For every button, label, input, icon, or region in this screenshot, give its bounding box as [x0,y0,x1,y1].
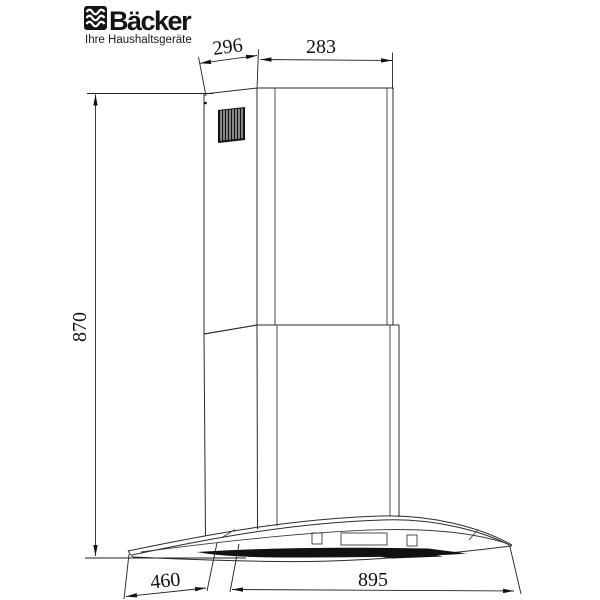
brand-logo: Bäcker Ihre Haushaltsgeräte [84,6,192,46]
control-panel [312,533,417,546]
vent-grille-icon [218,107,245,143]
dim-top-depth: 296 [199,34,259,96]
dim-label-height: 870 [69,312,91,342]
dim-label-top-width: 283 [306,36,336,58]
dim-label-top-depth: 296 [211,34,244,60]
dim-hood-depth: 460 [124,543,217,599]
control-button-right [407,535,417,546]
dim-label-hood-depth: 460 [149,569,181,594]
steam-waves-icon [84,6,107,30]
control-button-left [312,533,322,544]
dim-label-hood-width: 895 [358,569,388,591]
hood-dimension-drawing: Bäcker Ihre Haushaltsgeräte [0,0,600,600]
brand-tagline: Ihre Haushaltsgeräte [85,34,192,46]
rivet-dot [204,102,207,105]
dim-height: 870 [69,94,246,559]
dim-top-width: 283 [260,36,392,89]
control-display [341,533,387,545]
drawing-canvas: Bäcker Ihre Haushaltsgeräte [0,0,600,600]
hood-canopy [128,516,512,562]
chimney-lower-duct [204,325,399,536]
chimney-upper-duct [204,88,393,334]
brand-name: Bäcker [109,6,192,36]
